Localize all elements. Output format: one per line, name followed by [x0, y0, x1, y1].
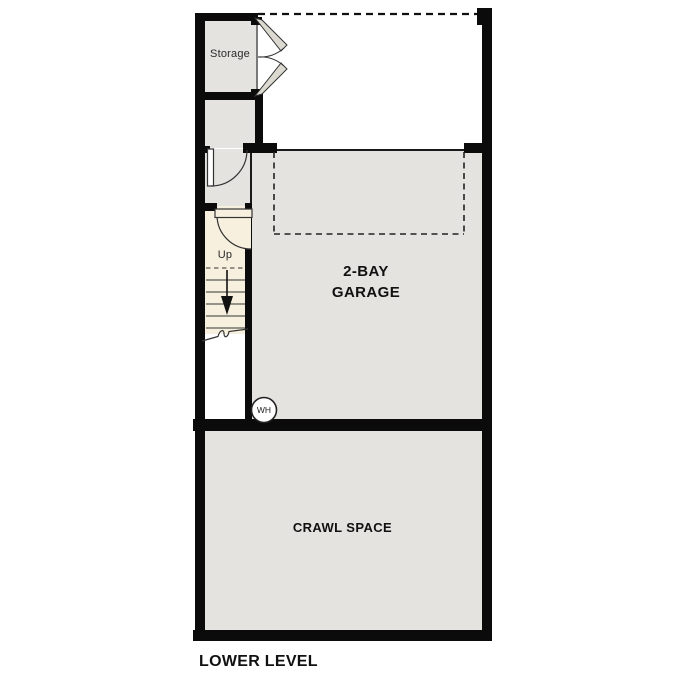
plan-linework [0, 0, 687, 687]
water-heater-label: WH [252, 405, 276, 415]
garage-room-label: 2-BAY GARAGE [250, 261, 482, 303]
garage-label-line2: GARAGE [250, 282, 482, 303]
hall-door-icon [208, 149, 248, 186]
garage-label-line1: 2-BAY [250, 261, 482, 282]
plan-title: LOWER LEVEL [199, 653, 318, 671]
stair-break-line [202, 329, 248, 341]
storage-room-label: Storage [202, 48, 258, 60]
floor-plan: Storage Up 2-BAY GARAGE WH CRAWL SPACE L… [0, 0, 687, 687]
stair-door-icon [215, 209, 252, 249]
crawl-space-label: CRAWL SPACE [203, 520, 482, 535]
garage-bay-dashed-outline [274, 152, 464, 234]
stairs-up-label: Up [205, 249, 245, 261]
